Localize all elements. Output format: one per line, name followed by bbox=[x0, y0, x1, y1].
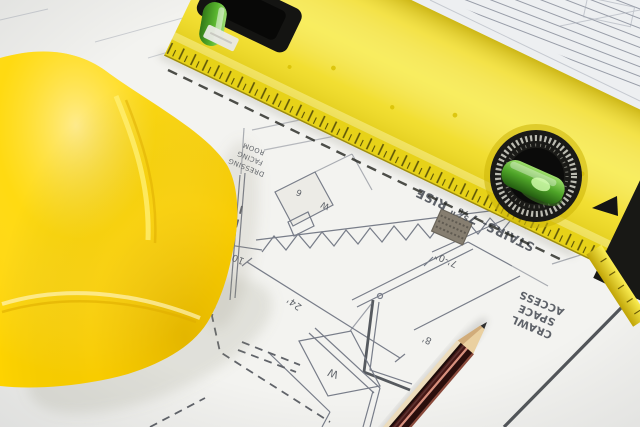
construction-photo-scene: STAIRS- 7⅝" RISE CRAWL SPACE ACCESS DRES… bbox=[0, 0, 640, 427]
photo-canvas: STAIRS- 7⅝" RISE CRAWL SPACE ACCESS DRES… bbox=[0, 0, 640, 427]
